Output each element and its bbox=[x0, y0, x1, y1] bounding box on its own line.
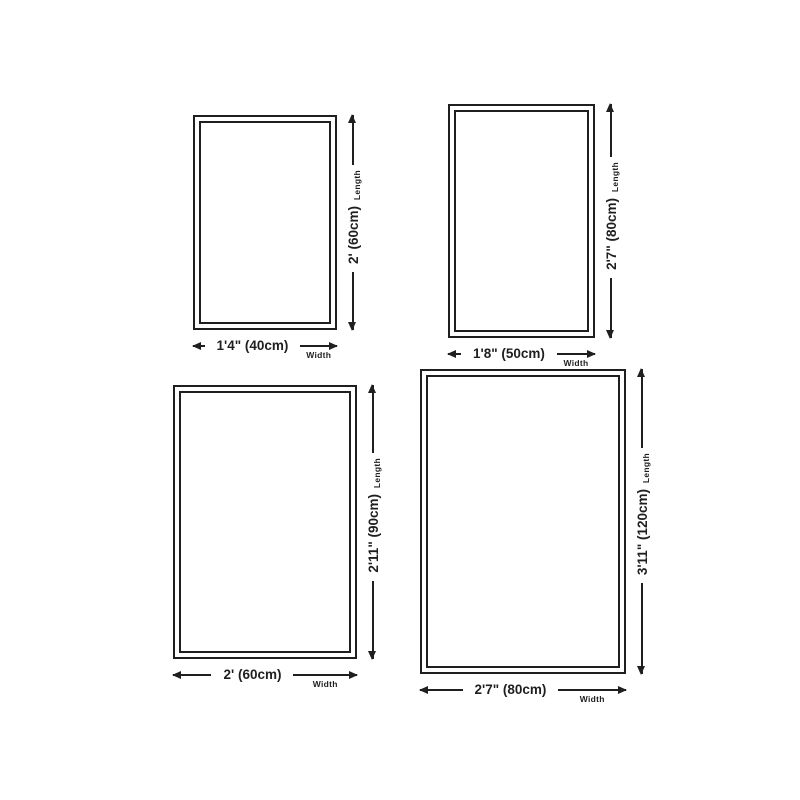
width-arrow-group: Width bbox=[557, 345, 595, 368]
rug-rectangle bbox=[420, 369, 626, 674]
width-dimension: 1'4" (40cm) Width bbox=[193, 337, 337, 360]
arrow-left-icon bbox=[193, 345, 205, 347]
width-label: Width bbox=[563, 358, 588, 368]
size-chart-diagram: Length 2' (60cm) 1'4" (40cm) Width Lengt… bbox=[0, 0, 800, 800]
arrow-left-icon bbox=[448, 353, 461, 355]
width-arrow-group: Width bbox=[293, 666, 357, 689]
arrow-left-icon bbox=[420, 689, 463, 691]
arrow-up-icon bbox=[352, 115, 354, 165]
rug-rectangle bbox=[193, 115, 337, 330]
arrow-right-icon bbox=[300, 345, 337, 347]
width-value: 2'7" (80cm) bbox=[463, 681, 559, 698]
arrow-right-icon bbox=[558, 689, 626, 691]
length-value: 2' (60cm) bbox=[346, 206, 361, 264]
length-value: 3'11" (120cm) bbox=[635, 489, 650, 575]
length-value: 2'11" (90cm) bbox=[366, 494, 381, 573]
arrow-right-icon bbox=[293, 674, 357, 676]
size-panel-80x120: Length 3'11" (120cm) 2'7" (80cm) Width bbox=[420, 369, 626, 674]
rug-inner-border bbox=[199, 121, 331, 324]
length-dimension: Length 2'11" (90cm) bbox=[359, 385, 387, 659]
arrow-up-icon bbox=[372, 385, 374, 453]
arrow-down-icon bbox=[372, 581, 374, 659]
arrow-up-icon bbox=[610, 104, 612, 157]
length-label: Length bbox=[372, 458, 382, 488]
arrow-down-icon bbox=[641, 583, 643, 674]
rug-inner-border bbox=[426, 375, 620, 668]
width-value: 2' (60cm) bbox=[211, 666, 293, 683]
length-label: Length bbox=[610, 162, 620, 192]
width-dimension: 2'7" (80cm) Width bbox=[420, 681, 626, 704]
length-label: Length bbox=[641, 453, 651, 483]
width-dimension: 1'8" (50cm) Width bbox=[448, 345, 595, 368]
width-arrow-group: Width bbox=[300, 337, 337, 360]
length-dimension: Length 2'7" (80cm) bbox=[597, 104, 625, 338]
arrow-up-icon bbox=[641, 369, 643, 448]
rug-inner-border bbox=[454, 110, 589, 332]
arrow-down-icon bbox=[610, 278, 612, 338]
arrow-left-icon bbox=[173, 674, 211, 676]
rug-rectangle bbox=[173, 385, 357, 659]
width-label: Width bbox=[580, 694, 605, 704]
width-value: 1'8" (50cm) bbox=[461, 345, 557, 362]
size-panel-60x90: Length 2'11" (90cm) 2' (60cm) Width bbox=[173, 385, 357, 659]
width-arrow-group: Width bbox=[558, 681, 626, 704]
width-label: Width bbox=[313, 679, 338, 689]
arrow-down-icon bbox=[352, 272, 354, 330]
length-dimension: Length 3'11" (120cm) bbox=[628, 369, 656, 674]
rug-inner-border bbox=[179, 391, 351, 653]
length-value: 2'7" (80cm) bbox=[604, 198, 619, 270]
rug-rectangle bbox=[448, 104, 595, 338]
width-value: 1'4" (40cm) bbox=[205, 337, 301, 354]
length-label: Length bbox=[352, 170, 362, 200]
size-panel-40x60: Length 2' (60cm) 1'4" (40cm) Width bbox=[193, 115, 337, 330]
arrow-right-icon bbox=[557, 353, 595, 355]
width-dimension: 2' (60cm) Width bbox=[173, 666, 357, 689]
length-dimension: Length 2' (60cm) bbox=[339, 115, 367, 330]
width-label: Width bbox=[306, 350, 331, 360]
size-panel-50x80: Length 2'7" (80cm) 1'8" (50cm) Width bbox=[448, 104, 595, 338]
